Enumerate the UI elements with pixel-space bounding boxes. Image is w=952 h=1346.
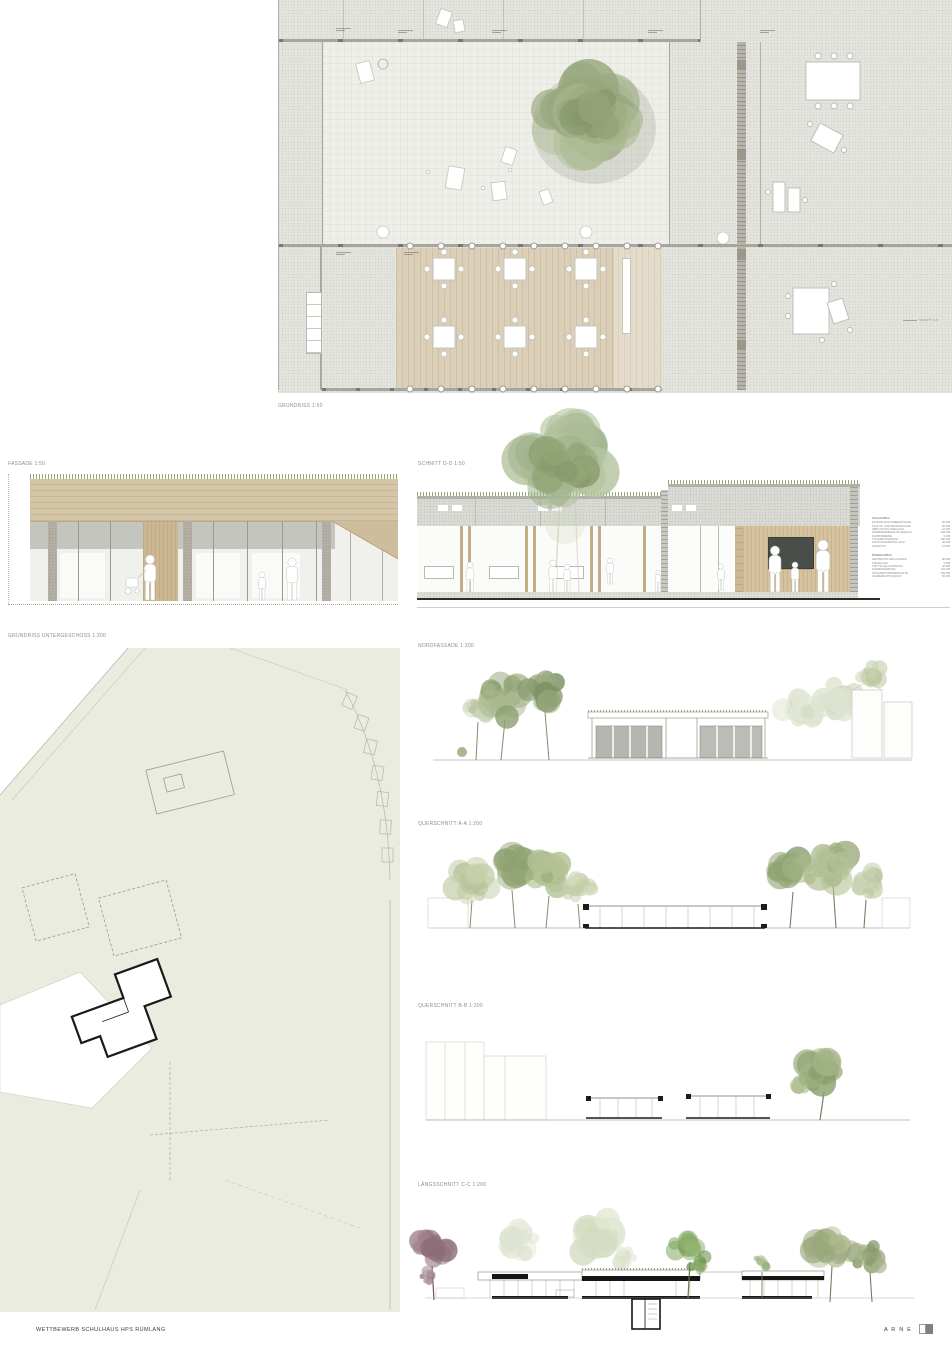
person [816, 540, 830, 592]
plan-overlay [278, 0, 952, 393]
marker-dash [903, 320, 917, 321]
querschnitt-aa-label: QUERSCHNITT A-A 1:200 [418, 821, 482, 827]
building-section [586, 1094, 771, 1118]
person [549, 560, 557, 592]
context-building [882, 898, 910, 928]
tree [443, 857, 501, 905]
tree-trunks [830, 1266, 872, 1302]
tree [754, 1255, 771, 1271]
person [258, 572, 265, 600]
board-title: WETTBEWERB SCHULHAUS HPS RÜMLANG [36, 1327, 166, 1333]
context-building [426, 1042, 546, 1120]
legend-heading: DACHAUFBAU [872, 517, 950, 520]
tree [562, 871, 598, 902]
person [144, 555, 156, 600]
column-row [407, 243, 661, 249]
table-group [424, 317, 464, 357]
tree [851, 863, 883, 900]
section-aa [415, 838, 952, 964]
logo-square-filled [926, 1324, 933, 1334]
context-building [436, 1288, 464, 1298]
table-group [566, 317, 606, 357]
context-buildings [852, 682, 912, 758]
querschnitt-bb-label: QUERSCHNITT B-B 1:200 [418, 1003, 483, 1009]
person-child [791, 562, 799, 592]
nordfassade-label: NORDFASSADE 1:200 [418, 643, 474, 649]
column-row [407, 386, 661, 392]
floor-plan-grundriss [278, 0, 952, 393]
legend-rows: HARTBETON GESCHLIFFEN80 MMTRENNLAGE5 MMT… [872, 558, 950, 578]
building-elevation [588, 711, 768, 758]
window-block [700, 726, 762, 758]
person-sitting [718, 564, 725, 590]
tree-inner [545, 504, 585, 544]
legend-boden: BODENAUFBAU HARTBETON GESCHLIFFEN80 MMTR… [872, 554, 950, 578]
section-cc [408, 1196, 952, 1338]
person-sitting [607, 558, 614, 584]
legend-dach: DACHAUFBAU EXTENSIVE DACHBEGRÜNUNG80 MMS… [872, 517, 950, 548]
elevation-fassade [0, 470, 400, 610]
boundary-line [8, 474, 9, 604]
tree-red [409, 1229, 457, 1267]
grundriss-label: GRUNDRISS 1:50 [278, 403, 323, 409]
table-group [424, 249, 464, 289]
person [466, 562, 474, 592]
person [655, 570, 661, 592]
section-bb [415, 1026, 952, 1144]
table-group [766, 53, 861, 343]
basement [632, 1299, 660, 1329]
table-group [495, 317, 535, 357]
laengsschnitt-cc-label: LÄNGSSCHNITT C-C 1:200 [418, 1182, 486, 1188]
studio-name: A R N E [884, 1327, 912, 1333]
table-group [566, 249, 606, 289]
wing-overlay [0, 470, 400, 610]
building-section [583, 904, 767, 928]
legend-rows: EXTENSIVE DACHBEGRÜNUNG80 MMSCHUTZ- UND … [872, 521, 950, 548]
shrub [457, 747, 467, 757]
schnitt-line-marker: SCHNITT D-D [903, 318, 938, 322]
section-dd: DACHAUFBAU EXTENSIVE DACHBEGRÜNUNG80 MMS… [415, 424, 952, 620]
piano [556, 1290, 574, 1297]
studio-logo [919, 1324, 933, 1334]
untergeschoss-label: GRUNDRISS UNTERGESCHOSS 1:200 [8, 633, 106, 639]
person [287, 558, 298, 600]
tree [855, 660, 887, 688]
canopy [588, 712, 768, 718]
building-section [425, 1269, 915, 1329]
elevation-nordfassade [415, 652, 952, 778]
site-plan [0, 648, 400, 1312]
marker-text: SCHNITT D-D [919, 318, 938, 322]
stroller [125, 570, 146, 594]
person-teacher [769, 546, 781, 592]
fassade-label: FASSADE 1:50 [8, 461, 45, 467]
window-block [596, 726, 662, 758]
competition-board: { "board": { "footer_title": "WETTBEWERB… [0, 0, 952, 1346]
tree-faint [498, 1219, 539, 1262]
legend-heading: BODENAUFBAU [872, 554, 950, 557]
tree [847, 1240, 887, 1273]
table-group [495, 249, 535, 289]
logo-square-outline [919, 1324, 926, 1334]
ground-line [8, 604, 398, 605]
person [563, 564, 570, 592]
